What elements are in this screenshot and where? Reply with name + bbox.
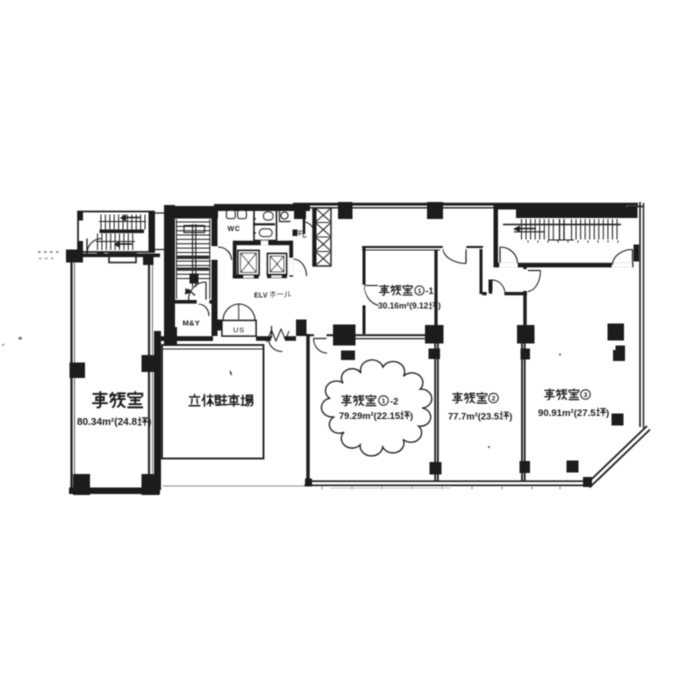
svg-text:US: US [233,326,245,335]
svg-text:77.7m²(23.5: 77.7m²(23.5 [448,411,499,422]
svg-text:-2: -2 [390,397,398,408]
svg-text:80.34m²(24.8: 80.34m²(24.8 [77,417,137,428]
svg-text:): ) [410,411,413,421]
svg-text:): ) [606,408,609,419]
svg-text:): ) [438,301,441,311]
svg-text:): ) [148,417,151,428]
svg-text:30.16m²(9.12: 30.16m²(9.12 [378,301,429,311]
svg-text:M&Y: M&Y [183,319,200,328]
svg-text:): ) [509,411,512,422]
svg-text:90.91m²(27.5: 90.91m²(27.5 [538,408,596,419]
svg-text:WC: WC [228,226,241,233]
svg-text:ELV: ELV [254,293,268,300]
svg-text:1: 1 [382,398,386,405]
svg-text:2: 2 [492,395,496,402]
svg-text:1: 1 [418,288,422,295]
svg-text:3: 3 [584,392,588,399]
svg-text:-1: -1 [426,286,434,296]
svg-text:79.29m²(22.15: 79.29m²(22.15 [339,411,400,421]
